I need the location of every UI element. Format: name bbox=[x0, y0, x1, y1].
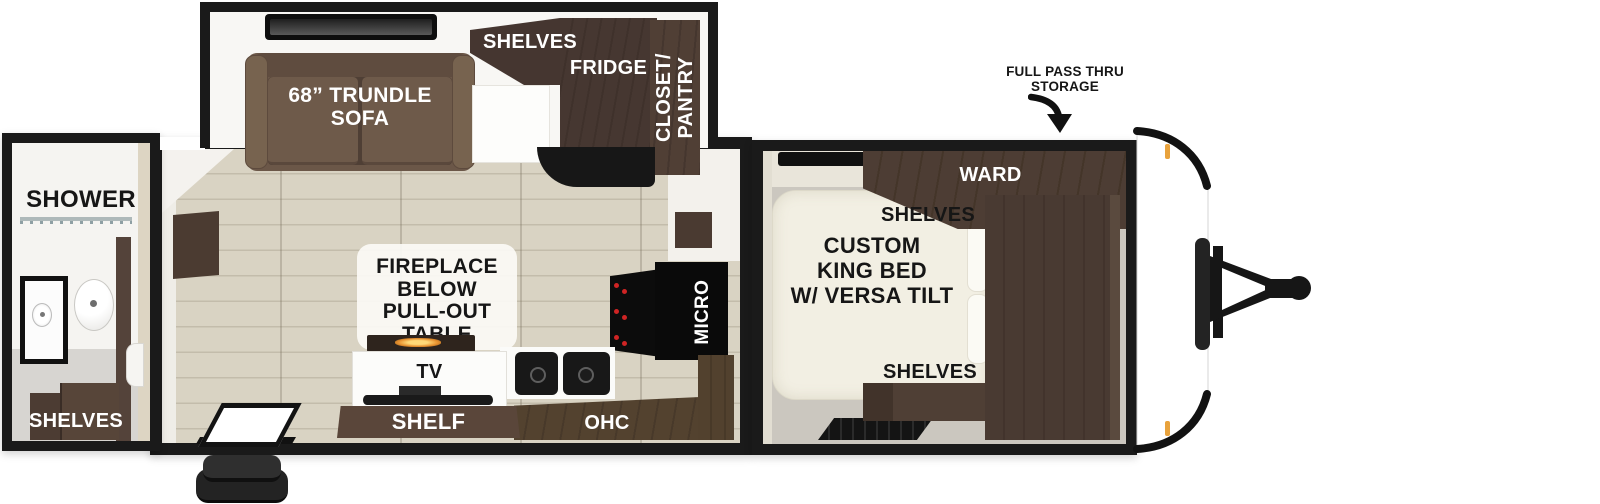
wall-panel bbox=[173, 211, 219, 279]
shelf-cabinet: SHELF bbox=[337, 406, 520, 438]
clearance-marker bbox=[1165, 421, 1170, 436]
burner-knob-icon bbox=[614, 335, 619, 340]
sink-basin bbox=[563, 352, 610, 395]
rear-bath-interior: SHOWER SHELVES bbox=[12, 143, 150, 441]
living-interior: FIREPLACE BELOW PULL-OUT TABLE TV SHELF … bbox=[162, 149, 740, 443]
window-glass bbox=[270, 19, 432, 35]
bed-shelves-top-label: SHELVES bbox=[868, 205, 988, 227]
sofa-backrest bbox=[253, 53, 467, 77]
kitchen-wall-cabinet bbox=[675, 212, 712, 248]
slide-out-module: 68” TRUNDLE SOFA SHELVES FRIDGE CLOSET/ … bbox=[200, 2, 718, 148]
burner-knob-icon bbox=[622, 341, 627, 346]
fireplace bbox=[367, 335, 475, 352]
floor-mat bbox=[818, 418, 933, 440]
bedroom-interior: CUSTOM KING BED W/ VERSA TILT WARD SHELV… bbox=[763, 151, 1126, 444]
clearance-marker bbox=[1165, 144, 1170, 159]
fridge-label: FRIDGE bbox=[560, 58, 657, 80]
bath-mirror bbox=[20, 276, 68, 364]
ohc-cabinet-column bbox=[698, 355, 734, 440]
bath-shelves-label: SHELVES bbox=[12, 411, 140, 433]
tv-console: TV bbox=[352, 351, 507, 408]
fireplace-flame-icon bbox=[395, 338, 441, 347]
bedroom-window bbox=[778, 152, 868, 166]
storage-arrow-icon bbox=[1028, 93, 1078, 135]
living-module: FIREPLACE BELOW PULL-OUT TABLE TV SHELF … bbox=[150, 137, 752, 455]
fireplace-table-label: FIREPLACE BELOW PULL-OUT TABLE bbox=[357, 256, 517, 347]
burner-knob-icon bbox=[622, 289, 627, 294]
tv-stand-icon bbox=[363, 395, 493, 405]
shower-label: SHOWER bbox=[18, 187, 144, 213]
trundle-sofa-label: 68” TRUNDLE SOFA bbox=[247, 85, 473, 130]
foot-shelf-step bbox=[863, 383, 893, 421]
king-bed-label: CUSTOM KING BED W/ VERSA TILT bbox=[763, 233, 981, 308]
burner-knob-icon bbox=[614, 283, 619, 288]
burner-knob-icon bbox=[614, 309, 619, 314]
closet-pantry-label: CLOSET/ PANTRY bbox=[653, 53, 696, 142]
tongue-jack bbox=[1195, 238, 1210, 350]
slide-out-interior: 68” TRUNDLE SOFA SHELVES FRIDGE CLOSET/ … bbox=[210, 12, 708, 148]
wall-opening bbox=[160, 137, 205, 150]
ward-label: WARD bbox=[938, 165, 1043, 187]
shelf-label: SHELF bbox=[392, 410, 466, 434]
trailer-front bbox=[1115, 118, 1325, 468]
sink-basin bbox=[515, 352, 558, 395]
mirror-sink-reflection bbox=[32, 303, 52, 327]
kitchen-shelves-label: SHELVES bbox=[465, 32, 595, 54]
microwave-label-box: MICRO bbox=[682, 267, 724, 357]
entry-steps bbox=[196, 455, 288, 501]
foot-shelves-cabinet bbox=[863, 383, 985, 421]
entry-step bbox=[203, 455, 281, 482]
floorplan-canvas: SHOWER SHELVES FIREPLACE BELOW PULL-OUT … bbox=[0, 0, 1600, 504]
bath-toilet bbox=[126, 343, 144, 387]
bedroom-module: CUSTOM KING BED W/ VERSA TILT WARD SHELV… bbox=[752, 140, 1137, 455]
coupler-ball-icon bbox=[1287, 276, 1311, 300]
shower-glass-shelf bbox=[20, 217, 132, 221]
wardrobe bbox=[985, 195, 1120, 440]
burner-knob-icon bbox=[622, 315, 627, 320]
trundle-sofa: 68” TRUNDLE SOFA bbox=[247, 53, 473, 171]
bed-shelves-bottom-label: SHELVES bbox=[870, 362, 990, 384]
bath-sink bbox=[74, 279, 114, 331]
closet-pantry-cabinet: CLOSET/ PANTRY bbox=[650, 20, 700, 175]
kitchen-counter bbox=[500, 347, 615, 399]
living-wall-wedge bbox=[162, 149, 234, 213]
tv-label: TV bbox=[353, 362, 506, 384]
pass-thru-storage-label: FULL PASS THRU STORAGE bbox=[985, 64, 1145, 94]
ohc-label: OHC bbox=[562, 413, 652, 435]
rear-bath-module: SHOWER SHELVES bbox=[2, 133, 160, 451]
slide-window bbox=[265, 14, 437, 40]
micro-label: MICRO bbox=[693, 280, 714, 345]
